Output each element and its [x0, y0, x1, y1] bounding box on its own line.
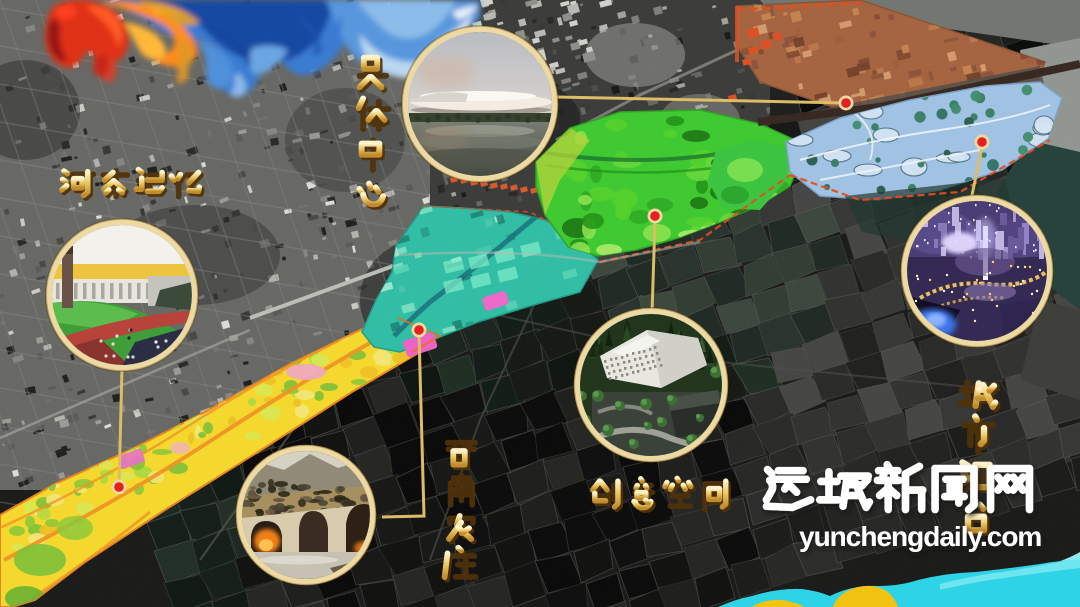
svg-text:yunchengdaily.com: yunchengdaily.com — [799, 521, 1041, 552]
